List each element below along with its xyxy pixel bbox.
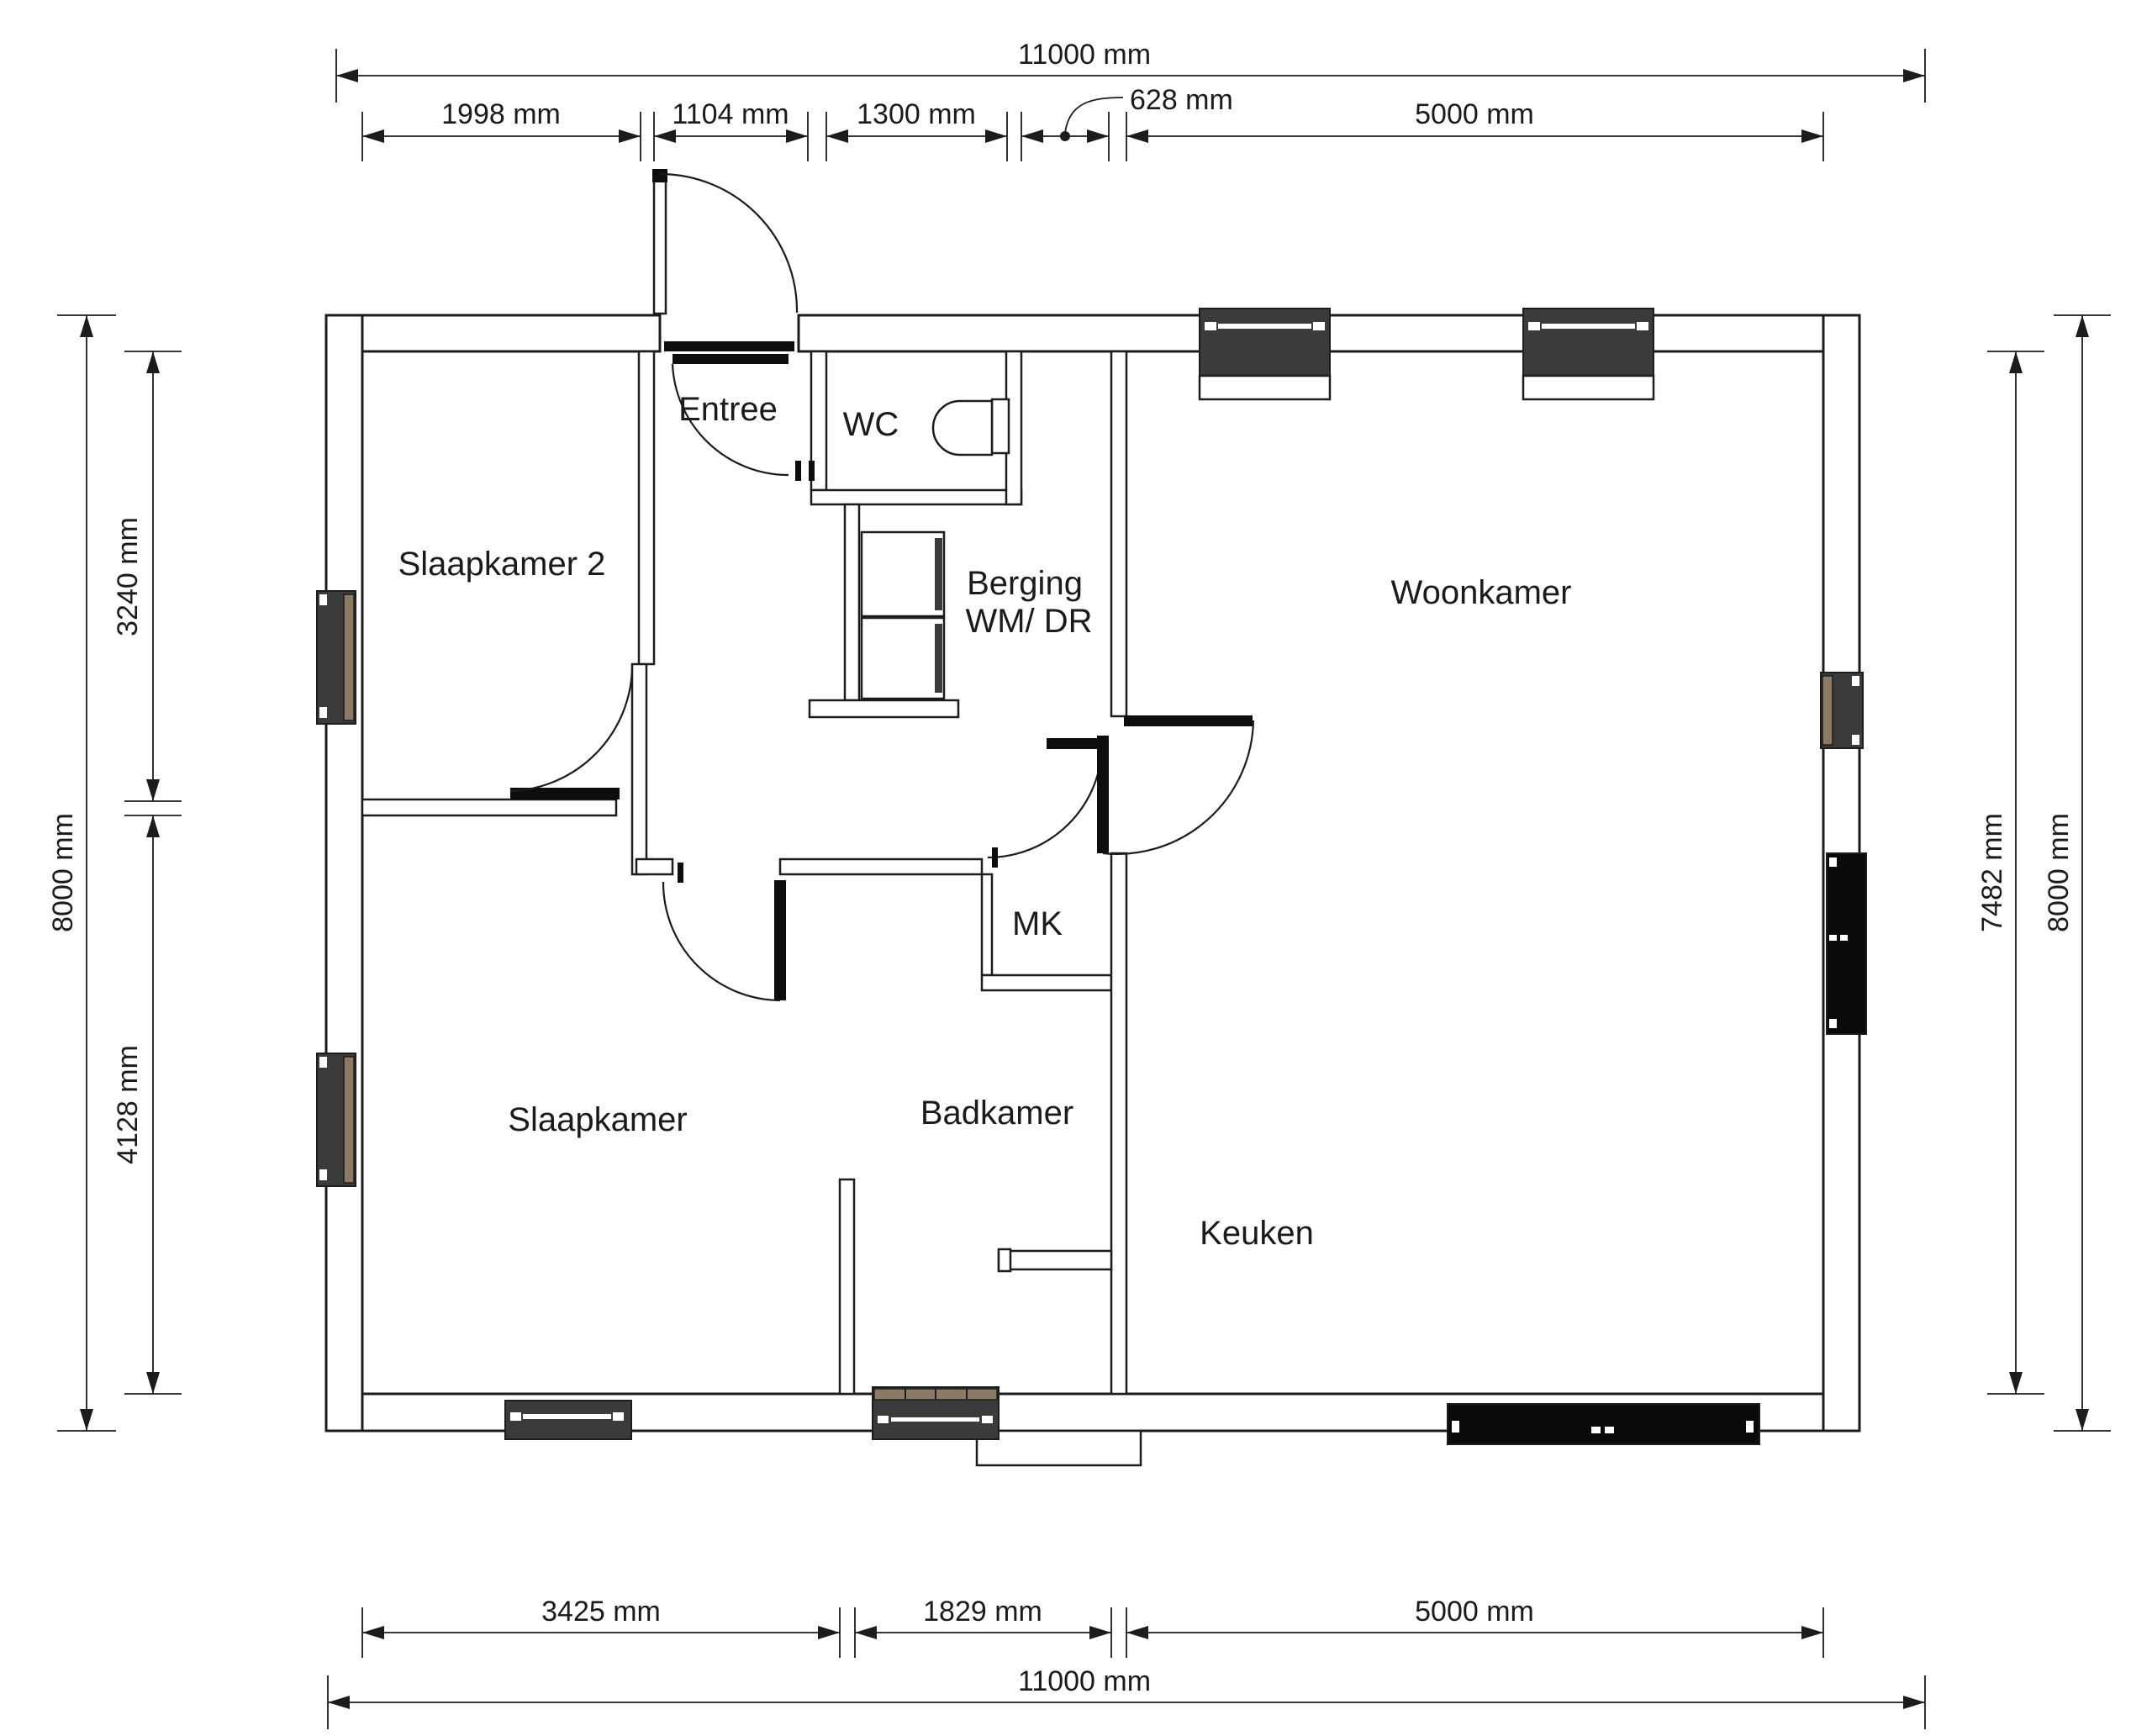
label-mk: MK — [1012, 905, 1063, 942]
mk-door-leaf — [1047, 738, 1105, 749]
dim-left-seg1-text: 3240 mm — [112, 517, 144, 636]
floorplan-sheet: Slaapkamer 2 Entree WC Berging WM/ DR Wo… — [0, 0, 2152, 1736]
interior-walls — [362, 351, 1126, 1394]
woonkamer-door-leaf — [1097, 736, 1109, 853]
label-entree: Entree — [678, 391, 778, 428]
wall-left — [326, 315, 362, 1431]
dim-top-seg1-text: 1998 mm — [441, 98, 561, 130]
berging-base-plinth — [810, 700, 958, 717]
dimension-bottom-total: 11000 mm — [328, 1665, 1925, 1729]
exterior-step — [977, 1431, 1141, 1465]
washing-machine-door-edge — [935, 538, 942, 610]
badkamer-counter — [999, 1251, 1111, 1269]
woonkamer-door-threshold — [1124, 715, 1253, 726]
slaapkamer-door-swing-arc — [663, 882, 780, 1000]
mk-door-stop — [992, 847, 998, 868]
wall-slaapkamer2-slaapkamer — [362, 799, 616, 815]
toilet-bowl — [933, 401, 992, 455]
badkamer-counter-endcap — [999, 1249, 1010, 1271]
slaapkamer-door-leaf — [774, 880, 786, 1000]
label-berging-line1: Berging — [967, 565, 1083, 602]
dryer — [862, 618, 944, 699]
dimension-left-segments: 3240 mm 4128 mm — [112, 351, 182, 1394]
floorplan-drawing: Slaapkamer 2 Entree WC Berging WM/ DR Wo… — [0, 0, 2152, 1736]
dim-top-total-text: 11000 mm — [1018, 39, 1151, 71]
dim-top-seg3-text: 1300 mm — [857, 98, 976, 130]
window-slaapkamer-left — [317, 1053, 356, 1186]
wall-berging-closet — [845, 504, 859, 700]
entree-door-stop — [795, 461, 801, 481]
washing-machine — [862, 532, 944, 616]
front-door-leaf — [654, 171, 666, 314]
label-slaapkamer2: Slaapkamer 2 — [398, 546, 606, 583]
wall-hall-south-a — [636, 859, 672, 874]
dimension-right-outer: 8000 mm — [2043, 315, 2111, 1431]
dimension-left-outer: 8000 mm — [47, 315, 116, 1431]
dim-bottom-total-text: 11000 mm — [1018, 1665, 1151, 1697]
front-door-threshold — [664, 341, 794, 351]
sliding-door-right — [1827, 853, 1866, 1034]
dim-right-inner-text: 7482 mm — [1976, 813, 2008, 932]
wall-top-left-segment — [326, 315, 660, 351]
dim-top-seg5-text: 5000 mm — [1415, 98, 1534, 130]
window-slaapkamer2-left — [317, 591, 356, 724]
dryer-door-edge — [935, 624, 942, 693]
window-slaapkamer-bottom — [505, 1401, 631, 1439]
dim-bottom-seg1-text: 3425 mm — [541, 1596, 661, 1628]
dim-top-seg4-text: 628 mm — [1130, 84, 1233, 116]
room-labels: Slaapkamer 2 Entree WC Berging WM/ DR Wo… — [398, 391, 1572, 1252]
wall-woonkamer-divider-upper — [1111, 351, 1126, 716]
woonkamer-door-swing-arc — [1103, 720, 1253, 854]
window-woonkamer-top-1 — [1200, 309, 1330, 399]
wall-mk-left — [982, 874, 992, 975]
label-badkamer: Badkamer — [920, 1095, 1073, 1132]
label-berging-line2: WM/ DR — [965, 603, 1092, 640]
dimension-top-segments: 1998 mm 1104 mm 1300 mm 628 mm 5000 mm — [362, 84, 1823, 161]
dim-bottom-seg2-text: 1829 mm — [923, 1596, 1042, 1628]
window-badkamer-bottom — [873, 1387, 999, 1439]
dim-left-outer-text: 8000 mm — [47, 813, 79, 932]
wall-mk-bottom — [982, 975, 1111, 990]
label-woonkamer: Woonkamer — [1391, 574, 1572, 611]
wall-slaapkamer2-entree — [639, 351, 654, 664]
dim-right-outer-text: 8000 mm — [2043, 813, 2075, 932]
dimension-bottom-segments: 3425 mm 1829 mm 5000 mm — [362, 1596, 1823, 1658]
slaapkamer-door-stop — [678, 863, 683, 883]
wall-hall-stub — [632, 664, 646, 874]
toilet-cistern — [992, 399, 1009, 453]
window-woonkamer-top-2 — [1523, 309, 1654, 399]
label-keuken: Keuken — [1200, 1215, 1314, 1252]
mk-door-swing-arc — [988, 743, 1102, 857]
sliding-door-keuken-bottom — [1448, 1404, 1759, 1444]
dimension-right-inner: 7482 mm — [1976, 351, 2044, 1394]
entree-door-leaf — [672, 354, 789, 364]
front-door-swing-arc — [660, 174, 797, 313]
windows — [317, 309, 1866, 1444]
label-wc: WC — [843, 406, 899, 443]
window-woonkamer-right — [1821, 673, 1863, 748]
label-slaapkamer: Slaapkamer — [508, 1101, 687, 1138]
entree-door-stop-2 — [809, 461, 815, 481]
dim-bottom-seg3-text: 5000 mm — [1415, 1596, 1534, 1628]
dim-top-seg2-text: 1104 mm — [672, 98, 789, 130]
wall-woonkamer-divider-lower — [1111, 853, 1126, 1394]
front-door-hinge-cap — [652, 169, 667, 182]
wall-wc-bottom — [811, 490, 1021, 504]
wall-hall-south-b — [780, 859, 982, 874]
dim-left-seg2-text: 4128 mm — [112, 1045, 144, 1164]
slaapkamer2-door-swing-arc — [510, 667, 632, 791]
dim-628-leader-line — [1065, 98, 1123, 133]
wall-slaapkamer-badkamer — [840, 1179, 854, 1394]
